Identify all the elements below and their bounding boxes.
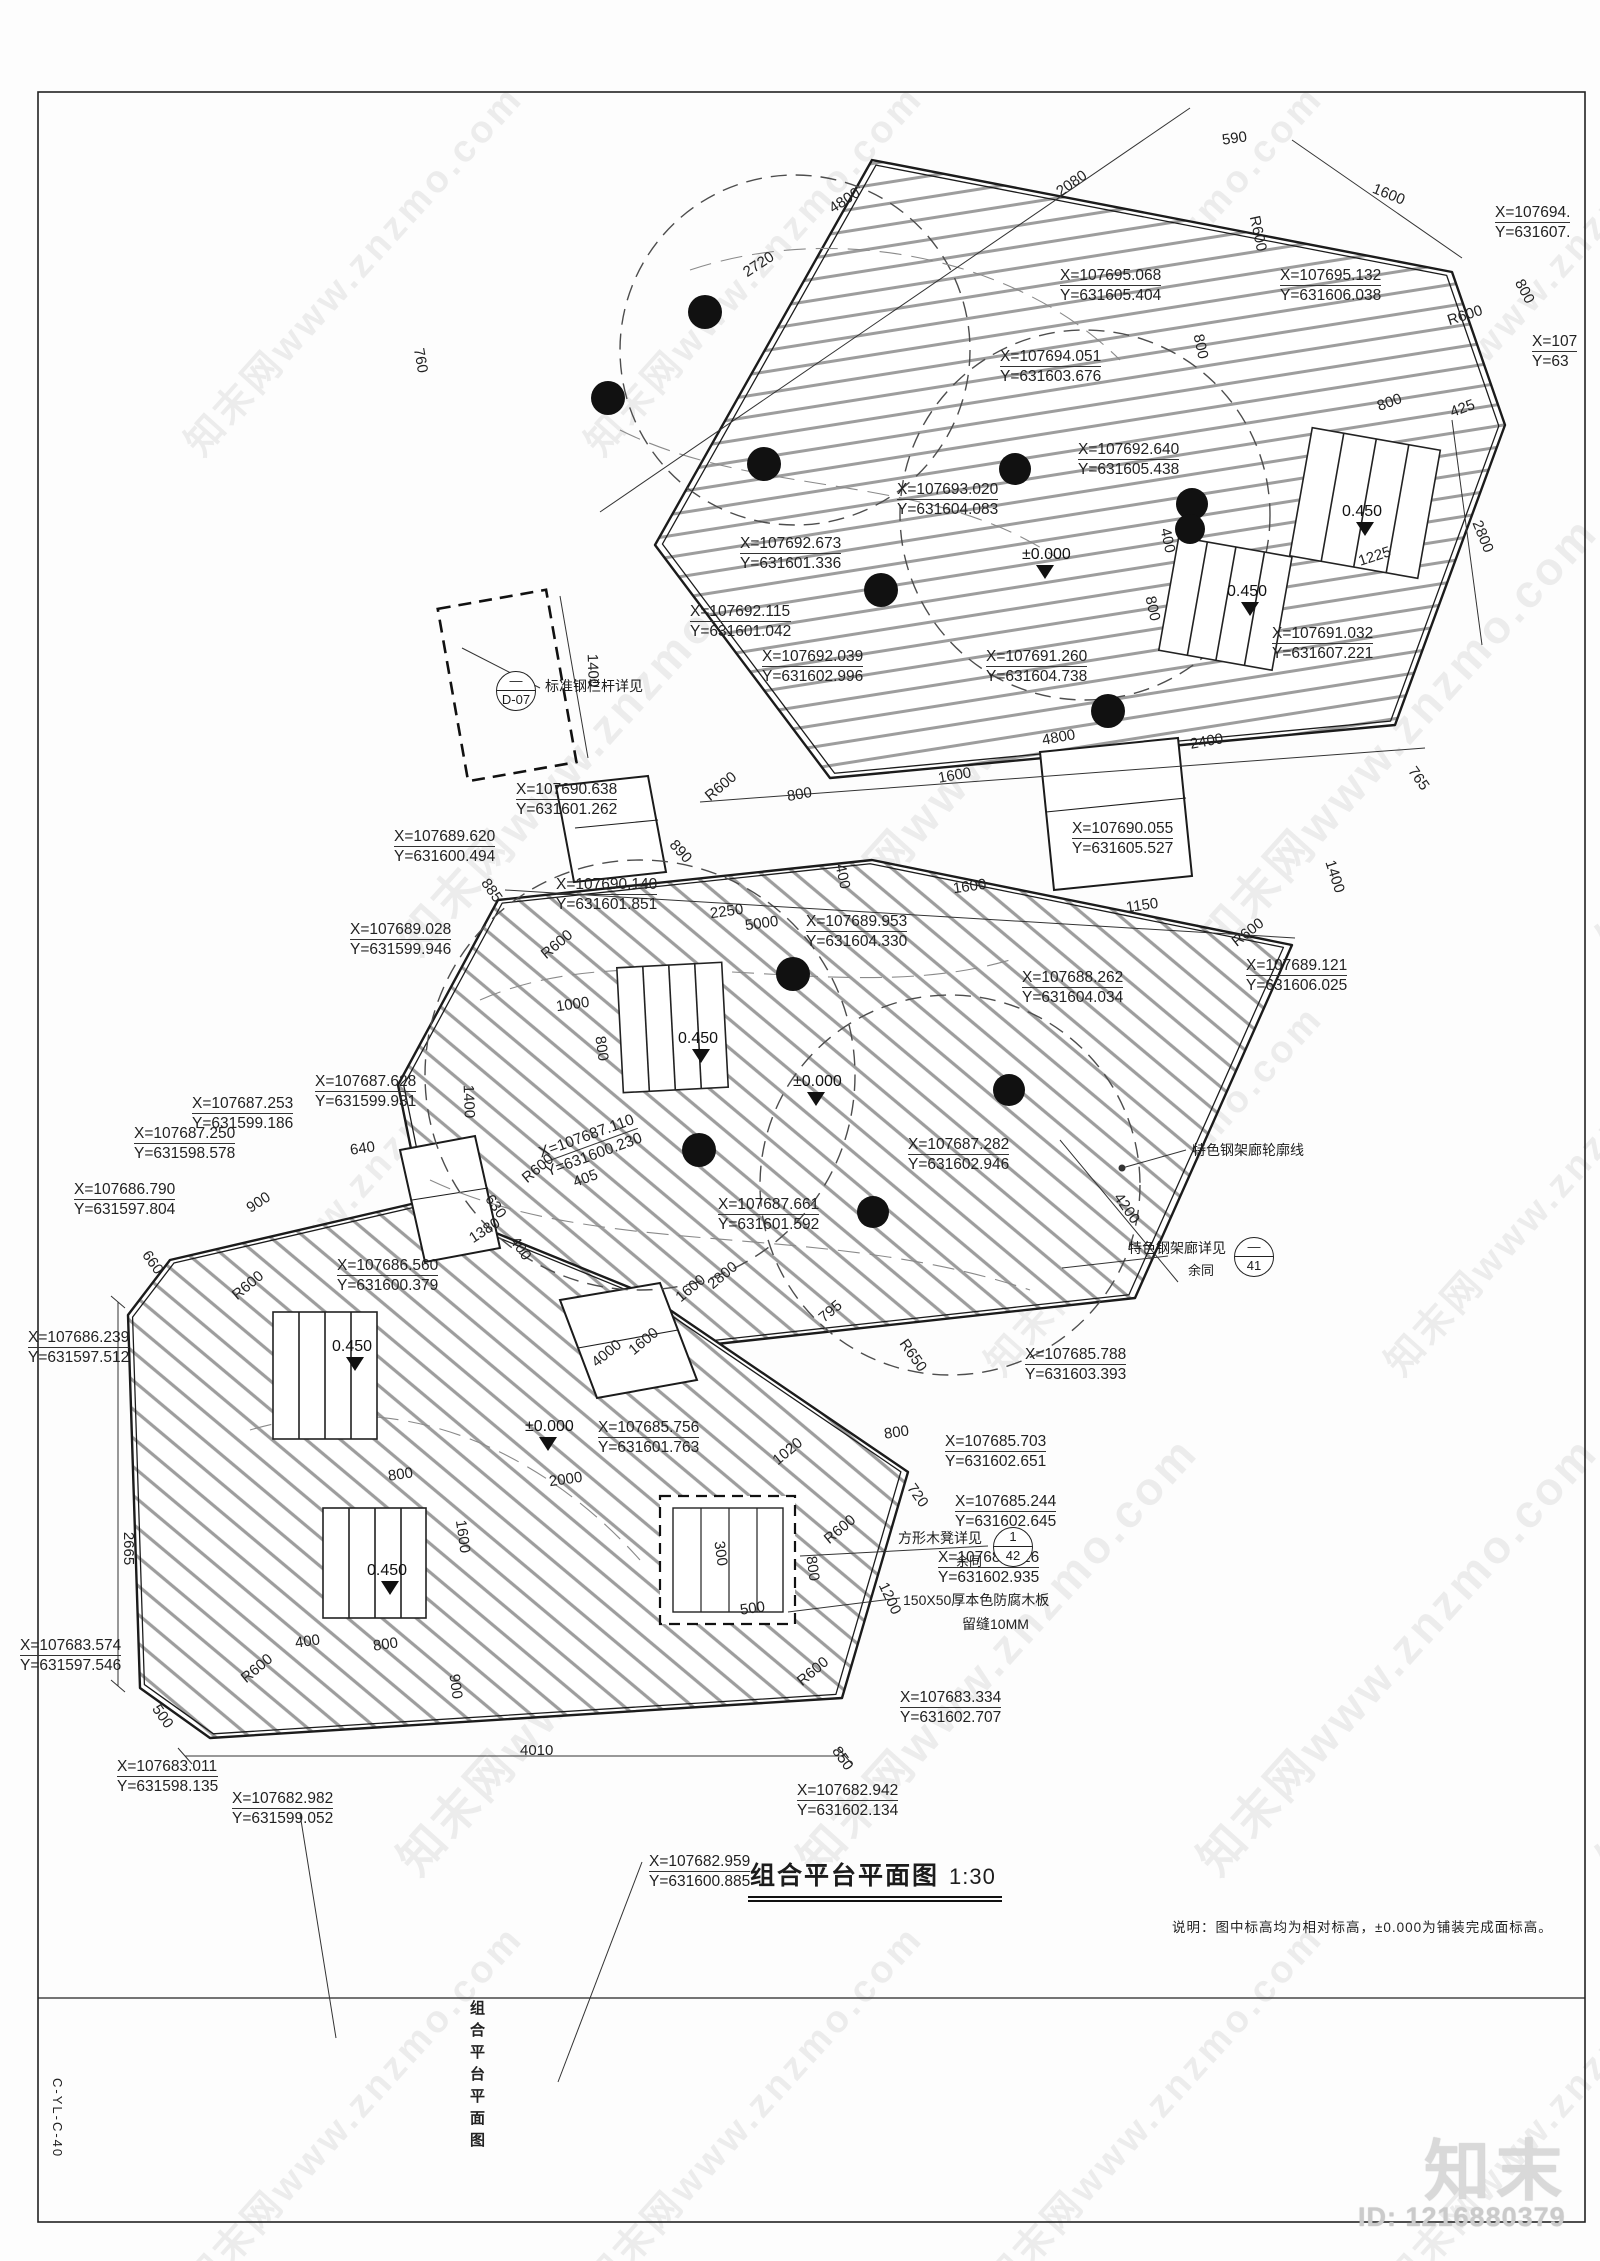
coordinate-x: X=107689.028: [350, 920, 451, 940]
drawing-scale: 1:30: [949, 1864, 996, 1889]
dimension-label: 400: [294, 1631, 321, 1651]
level-triangle-icon: [807, 1092, 825, 1106]
level-triangle-icon: [1241, 602, 1259, 616]
level-value: 0.450: [332, 1338, 372, 1355]
dimension-label: R600: [538, 926, 576, 962]
coordinate-x: X=107690.055: [1072, 819, 1173, 839]
dimension-label: 2665: [120, 1532, 137, 1565]
coordinate-y: Y=631598.578: [134, 1144, 235, 1163]
coordinate-x: X=107686.790: [74, 1180, 175, 1200]
coordinate-x: X=107685.703: [945, 1432, 1046, 1452]
dimension-label: 760: [410, 347, 431, 375]
coordinate-x: X=107689.953: [806, 912, 907, 932]
coordinate-x: X=107692.115: [690, 602, 791, 622]
coordinate-label: X=107682.942Y=631602.134: [797, 1781, 898, 1821]
coordinate-y: Y=631602.935: [938, 1568, 1039, 1587]
coordinate-x: X=107687.661: [718, 1195, 819, 1215]
dimension-label: 890: [666, 837, 695, 867]
note-text: 留缝10MM: [962, 1614, 1029, 1634]
coordinate-x: X=107687.253: [192, 1094, 293, 1114]
coordinate-label: X=107689.953Y=631604.330: [806, 912, 907, 952]
coordinate-x: X=107692.673: [740, 534, 841, 554]
detail-sheet: 42: [994, 1547, 1032, 1565]
detail-bubble-icon: 142: [993, 1527, 1033, 1567]
coordinate-label: X=107694.051Y=631603.676: [1000, 347, 1101, 387]
level-marker: 0.450: [367, 1562, 407, 1580]
level-marker: 0.450: [1342, 503, 1382, 521]
coordinate-label: X=107695.068Y=631605.404: [1060, 266, 1161, 306]
dimension-label: 885: [477, 875, 505, 905]
coordinate-y: Y=631597.804: [74, 1200, 175, 1219]
dimension-label: 1600: [672, 1271, 708, 1305]
level-value: 0.450: [367, 1562, 407, 1579]
dimension-label: 800: [802, 1555, 822, 1582]
dimension-label: R600: [1229, 915, 1268, 950]
coordinate-x: X=107: [1532, 332, 1577, 352]
coordinate-label: X=107692.640Y=631605.438: [1078, 440, 1179, 480]
dimension-label: 1600: [937, 764, 973, 787]
dimension-label: R600: [229, 1267, 267, 1303]
coordinate-x: X=107688.262: [1022, 968, 1123, 988]
coordinate-label: X=107690.140Y=631601.851: [556, 875, 657, 915]
coordinate-label: X=107692.673Y=631601.336: [740, 534, 841, 574]
dimension-label: 800: [387, 1464, 414, 1484]
coordinate-label: X=107687.282Y=631602.946: [908, 1135, 1009, 1175]
dimension-label: 900: [243, 1189, 273, 1217]
dimension-label: 1600: [1370, 180, 1407, 208]
side-title-vertical: 组合平台平面图: [466, 2000, 487, 2154]
level-value: 0.450: [1227, 583, 1267, 600]
dimension-label: 1380: [466, 1214, 503, 1246]
dimension-label: 4000: [588, 1336, 624, 1370]
coordinate-label: X=107694.Y=631607.: [1495, 203, 1570, 243]
coordinate-y: Y=631603.676: [1000, 367, 1101, 386]
coordinate-x: X=107689.121: [1246, 956, 1347, 976]
dimension-label: 1225: [1356, 543, 1393, 569]
drawing-title-text: 组合平台平面图: [750, 1862, 939, 1890]
level-marker: 0.450: [678, 1030, 718, 1048]
coordinate-x: X=107683.574: [20, 1636, 121, 1656]
detail-number: —: [1235, 1238, 1273, 1257]
dimension-label: 1400: [460, 1085, 478, 1119]
dimension-label: 1000: [555, 994, 590, 1015]
dimension-label: 800: [591, 1035, 611, 1062]
level-triangle-icon: [1356, 522, 1374, 536]
coordinate-x: X=107692.039: [762, 647, 863, 667]
coordinate-y: Y=631599.052: [232, 1809, 333, 1828]
coordinate-x: X=107694.051: [1000, 347, 1101, 367]
coordinate-y: Y=631600.494: [394, 847, 495, 866]
detail-sheet: D-07: [497, 691, 535, 709]
dimension-label: 1600: [452, 1519, 473, 1554]
dimension-label: R600: [238, 1650, 276, 1686]
coordinate-x: X=107691.260: [986, 647, 1087, 667]
coordinate-label: X=107683.574Y=631597.546: [20, 1636, 121, 1676]
coordinate-y: Y=631605.404: [1060, 286, 1161, 305]
coordinate-y: Y=631601.851: [556, 895, 657, 914]
level-value: ±0.000: [1022, 546, 1071, 563]
dimension-label: 300: [710, 1540, 730, 1567]
note-text: 特色钢架廊轮廓线: [1192, 1140, 1304, 1160]
coordinate-x: X=107690.638: [516, 780, 617, 800]
coordinate-y: Y=631600.379: [337, 1276, 438, 1295]
level-marker: 0.450: [332, 1338, 372, 1356]
coordinate-x: X=107693.020: [897, 480, 998, 500]
dimension-label: 2250: [709, 901, 744, 922]
coordinate-x: X=107685.788: [1025, 1345, 1126, 1365]
coordinate-y: Y=631601.763: [598, 1438, 699, 1457]
dimension-label: R600: [1445, 302, 1484, 329]
coordinate-label: X=107686.790Y=631597.804: [74, 1180, 175, 1220]
coordinate-label: X=107689.620Y=631600.494: [394, 827, 495, 867]
dimension-label: 2800: [704, 1258, 740, 1292]
coordinate-label: X=107689.028Y=631599.946: [350, 920, 451, 960]
coordinate-x: X=107682.959: [649, 1852, 750, 1872]
coordinate-label: X=107Y=63: [1532, 332, 1577, 372]
level-value: ±0.000: [793, 1073, 842, 1090]
dimension-label: R650: [896, 1336, 930, 1375]
coordinate-label: X=107685.756Y=631601.763: [598, 1418, 699, 1458]
coordinate-x: X=107685.756: [598, 1418, 699, 1438]
coordinate-y: Y=631601.262: [516, 800, 617, 819]
coordinate-label: X=107683.334Y=631602.707: [900, 1688, 1001, 1728]
dimension-label: R600: [702, 768, 740, 804]
coordinate-y: Y=631597.546: [20, 1656, 121, 1675]
coordinate-y: Y=631601.336: [740, 554, 841, 573]
coordinate-label: X=107689.121Y=631606.025: [1246, 956, 1347, 996]
level-triangle-icon: [692, 1049, 710, 1063]
dimension-label: 2000: [548, 1469, 583, 1490]
callout-sublabel: 余同: [1188, 1260, 1214, 1279]
coordinate-y: Y=631605.438: [1078, 460, 1179, 479]
coordinate-label: X=107683.011Y=631598.135: [117, 1757, 218, 1797]
dimension-label: 2080: [1053, 167, 1090, 200]
dimension-label: 5000: [744, 913, 779, 934]
dimension-label: 2720: [740, 248, 777, 280]
coordinate-label: X=107691.032Y=631607.221: [1272, 624, 1373, 664]
dimension-label: 400: [506, 1233, 534, 1263]
coordinate-label: X=107692.039Y=631602.996: [762, 647, 863, 687]
level-value: 0.450: [678, 1030, 718, 1047]
detail-number: —: [497, 672, 535, 691]
coordinate-y: Y=631598.135: [117, 1777, 218, 1796]
level-triangle-icon: [346, 1357, 364, 1371]
coordinate-label: X=107687.661Y=631601.592: [718, 1195, 819, 1235]
dimension-label: 1150: [1125, 895, 1159, 916]
coordinate-x: X=107686.560: [337, 1256, 438, 1276]
coordinate-x: X=107682.982: [232, 1789, 333, 1809]
coordinate-x: X=107687.282: [908, 1135, 1009, 1155]
coordinate-x: X=107689.620: [394, 827, 495, 847]
dimension-label: 1020: [769, 1434, 805, 1468]
note-text: 150X50厚本色防腐木板: [903, 1590, 1049, 1610]
coordinate-x: X=107692.640: [1078, 440, 1179, 460]
dimension-label: 800: [1190, 332, 1212, 360]
coordinate-y: Y=63: [1532, 352, 1577, 371]
dimension-label: R600: [1246, 214, 1270, 253]
coordinate-x: X=107695.132: [1280, 266, 1381, 286]
level-triangle-icon: [539, 1437, 557, 1451]
coordinate-y: Y=631602.946: [908, 1155, 1009, 1174]
level-marker: ±0.000: [525, 1418, 574, 1436]
coordinate-label: X=107685.244Y=631602.645: [955, 1492, 1056, 1532]
cad-sheet: 知末网www.znzmo.com知末网www.znzmo.com知末网www.z…: [0, 0, 1600, 2261]
dimension-label: 800: [372, 1634, 399, 1654]
coordinate-y: Y=631607.221: [1272, 644, 1373, 663]
callout-label: 特色钢架廊详见: [1128, 1238, 1226, 1258]
dimension-label: 4800: [1041, 726, 1077, 749]
coordinate-y: Y=631602.707: [900, 1708, 1001, 1727]
coordinate-y: Y=631606.025: [1246, 976, 1347, 995]
dimension-label: 800: [883, 1422, 910, 1442]
dimension-label: 1200: [875, 1580, 905, 1617]
dimension-label: R600: [821, 1511, 859, 1547]
coordinate-x: X=107683.334: [900, 1688, 1001, 1708]
coordinate-y: Y=631597.512: [28, 1348, 129, 1367]
level-triangle-icon: [381, 1581, 399, 1595]
coordinate-label: X=107692.115Y=631601.042: [690, 602, 791, 642]
coordinate-label: X=107690.638Y=631601.262: [516, 780, 617, 820]
coordinate-y: Y=631601.592: [718, 1215, 819, 1234]
dimension-label: 4800: [826, 184, 863, 216]
coordinate-x: X=107686.239: [28, 1328, 129, 1348]
dimension-label: 2400: [1189, 730, 1225, 753]
watermark-id: ID: 1216880379: [1358, 2202, 1566, 2233]
level-value: ±0.000: [525, 1418, 574, 1435]
dimension-label: 400: [1157, 526, 1179, 554]
coordinate-x: X=107690.140: [556, 875, 657, 895]
dimension-label: 4010: [520, 1742, 553, 1759]
coordinate-y: Y=631603.393: [1025, 1365, 1126, 1384]
drawing-title: 组合平台平面图1:30: [748, 1856, 1002, 1898]
coordinate-y: Y=631602.134: [797, 1801, 898, 1820]
dimension-label: 800: [1511, 276, 1538, 306]
coordinate-y: Y=631600.885: [649, 1872, 750, 1891]
dimension-label: 1600: [952, 876, 987, 897]
coordinate-label: X=107685.788Y=631603.393: [1025, 1345, 1126, 1385]
callout-label: 方形木凳详见: [898, 1528, 982, 1548]
coordinate-y: Y=631604.738: [986, 667, 1087, 686]
dimension-label: 765: [1404, 763, 1432, 793]
sheet-number: C-YL-C-40: [50, 2078, 65, 2158]
coordinate-y: Y=631604.330: [806, 932, 907, 951]
coordinate-label: X=107682.982Y=631599.052: [232, 1789, 333, 1829]
coordinate-label: X=107695.132Y=631606.038: [1280, 266, 1381, 306]
coordinate-x: X=107695.068: [1060, 266, 1161, 286]
level-marker: 0.450: [1227, 583, 1267, 601]
coordinate-y: Y=631599.946: [350, 940, 451, 959]
level-value: 0.450: [1342, 503, 1382, 520]
level-marker: ±0.000: [1022, 546, 1071, 564]
dimension-label: 900: [445, 1673, 465, 1700]
dimension-label: 850: [828, 1743, 856, 1773]
coordinate-label: X=107688.262Y=631604.034: [1022, 968, 1123, 1008]
dimension-label: 795: [815, 1297, 845, 1326]
callout-sublabel: 余同: [956, 1551, 982, 1570]
dimension-label: 1600: [625, 1324, 661, 1358]
coordinate-label: X=107691.260Y=631604.738: [986, 647, 1087, 687]
watermark-brand-logo: 知末: [1424, 2118, 1568, 2214]
coordinate-y: Y=631607.: [1495, 223, 1570, 242]
detail-number: 1: [994, 1528, 1032, 1547]
dimension-label: 800: [786, 784, 814, 805]
level-triangle-icon: [1036, 565, 1054, 579]
detail-bubble-icon: —41: [1234, 1237, 1274, 1277]
callout-label: 标准钢栏杆详见: [545, 676, 643, 696]
level-marker: ±0.000: [793, 1073, 842, 1091]
detail-bubble-icon: —D-07: [496, 671, 536, 711]
coordinate-y: Y=631605.527: [1072, 839, 1173, 858]
coordinate-x: X=107687.250: [134, 1124, 235, 1144]
dimension-label: 425: [1448, 396, 1477, 421]
dimension-label: 2800: [1469, 518, 1497, 555]
dimension-label: 590: [1221, 128, 1248, 148]
coordinate-x: X=107687.628: [315, 1072, 416, 1092]
coordinate-label: X=107690.055Y=631605.527: [1072, 819, 1173, 859]
dimension-label: 800: [1142, 594, 1164, 622]
coordinate-label: X=107686.239Y=631597.512: [28, 1328, 129, 1368]
coordinate-x: X=107691.032: [1272, 624, 1373, 644]
dimension-label: R600: [794, 1653, 832, 1689]
coordinate-label: X=107685.703Y=631602.651: [945, 1432, 1046, 1472]
coordinate-label: X=107687.628Y=631599.931: [315, 1072, 416, 1112]
coordinate-label: X=107686.560Y=631600.379: [337, 1256, 438, 1296]
coordinate-y: Y=631604.034: [1022, 988, 1123, 1007]
coordinate-label: X=107687.250Y=631598.578: [134, 1124, 235, 1164]
coordinate-y: Y=631601.042: [690, 622, 791, 641]
detail-sheet: 41: [1235, 1257, 1273, 1275]
coordinate-x: X=107682.942: [797, 1781, 898, 1801]
coordinate-label: X=107693.020Y=631604.083: [897, 480, 998, 520]
coordinate-x: X=107685.244: [955, 1492, 1056, 1512]
coordinate-y: Y=631602.651: [945, 1452, 1046, 1471]
dimension-label: 720: [903, 1480, 931, 1510]
coordinate-y: Y=631604.083: [897, 500, 998, 519]
dimension-label: 500: [739, 1598, 766, 1618]
dimension-label: 800: [1375, 390, 1404, 415]
dimension-label: 4200: [1110, 1190, 1143, 1227]
dimension-label: 640: [349, 1138, 376, 1158]
sheet-note: 说明：图中标高均为相对标高，±0.000为铺装完成面标高。: [1172, 1916, 1553, 1936]
coordinate-x: X=107694.: [1495, 203, 1570, 223]
coordinate-x: X=107683.011: [117, 1757, 218, 1777]
coordinate-y: Y=631599.931: [315, 1092, 416, 1111]
dimension-label: 500: [148, 1701, 176, 1731]
coordinate-y: Y=631606.038: [1280, 286, 1381, 305]
coordinate-y: Y=631602.996: [762, 667, 863, 686]
coordinate-label: X=107682.959Y=631600.885: [649, 1852, 750, 1892]
dimension-label: 400: [832, 862, 854, 890]
dimension-label: 660: [138, 1247, 166, 1277]
dimension-label: 1400: [1321, 858, 1347, 895]
